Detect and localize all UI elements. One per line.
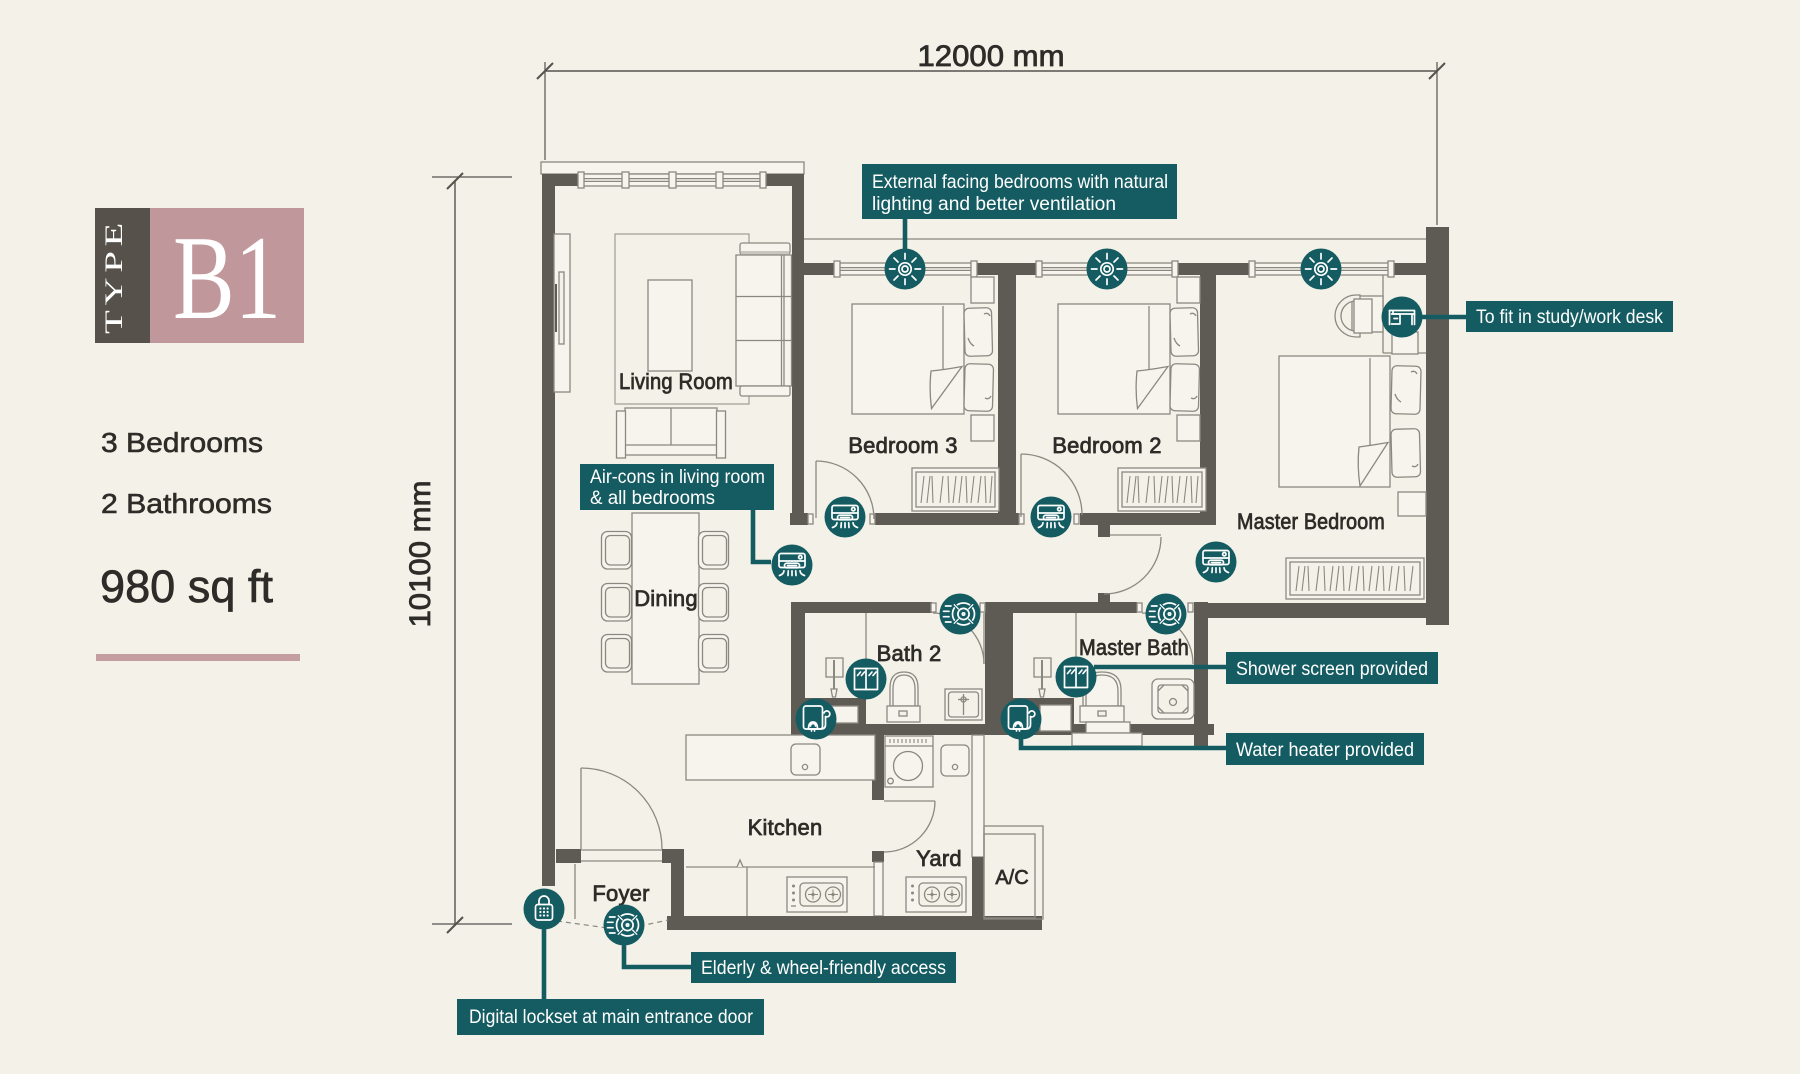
svg-text:Yard: Yard	[916, 846, 962, 871]
svg-text:& all bedrooms: & all bedrooms	[590, 488, 715, 509]
svg-text:Master Bath: Master Bath	[1079, 635, 1189, 660]
svg-text:Shower screen provided: Shower screen provided	[1236, 659, 1428, 680]
svg-text:Master Bedroom: Master Bedroom	[1237, 509, 1385, 534]
svg-text:Bedroom 2: Bedroom 2	[1052, 433, 1161, 458]
svg-text:980 sq ft: 980 sq ft	[100, 561, 273, 612]
svg-text:Dining: Dining	[634, 586, 698, 611]
svg-text:Kitchen: Kitchen	[748, 815, 823, 840]
svg-text:A/C: A/C	[995, 867, 1028, 889]
svg-text:B1: B1	[173, 211, 281, 344]
svg-text:3 Bedrooms: 3 Bedrooms	[101, 427, 263, 458]
svg-text:External facing bedrooms with: External facing bedrooms with natural	[872, 172, 1168, 193]
svg-text:Water heater provided: Water heater provided	[1236, 740, 1414, 761]
svg-text:Bath 2: Bath 2	[877, 641, 942, 666]
svg-text:10100 mm: 10100 mm	[404, 481, 437, 628]
svg-text:Digital lockset at main entran: Digital lockset at main entrance door	[469, 1007, 754, 1028]
svg-text:Bedroom 3: Bedroom 3	[848, 433, 957, 458]
svg-text:TYPE: TYPE	[101, 218, 128, 334]
svg-text:lighting and better ventilatio: lighting and better ventilation	[872, 194, 1116, 215]
svg-text:Foyer: Foyer	[592, 881, 649, 906]
svg-text:2 Bathrooms: 2 Bathrooms	[101, 488, 272, 519]
svg-text:Air-cons in living room: Air-cons in living room	[590, 467, 765, 488]
svg-text:Living Room: Living Room	[619, 369, 733, 394]
svg-text:To fit in study/work desk: To fit in study/work desk	[1476, 307, 1663, 328]
svg-text:12000 mm: 12000 mm	[918, 40, 1065, 73]
svg-text:Elderly & wheel-friendly acces: Elderly & wheel-friendly access	[701, 958, 946, 979]
